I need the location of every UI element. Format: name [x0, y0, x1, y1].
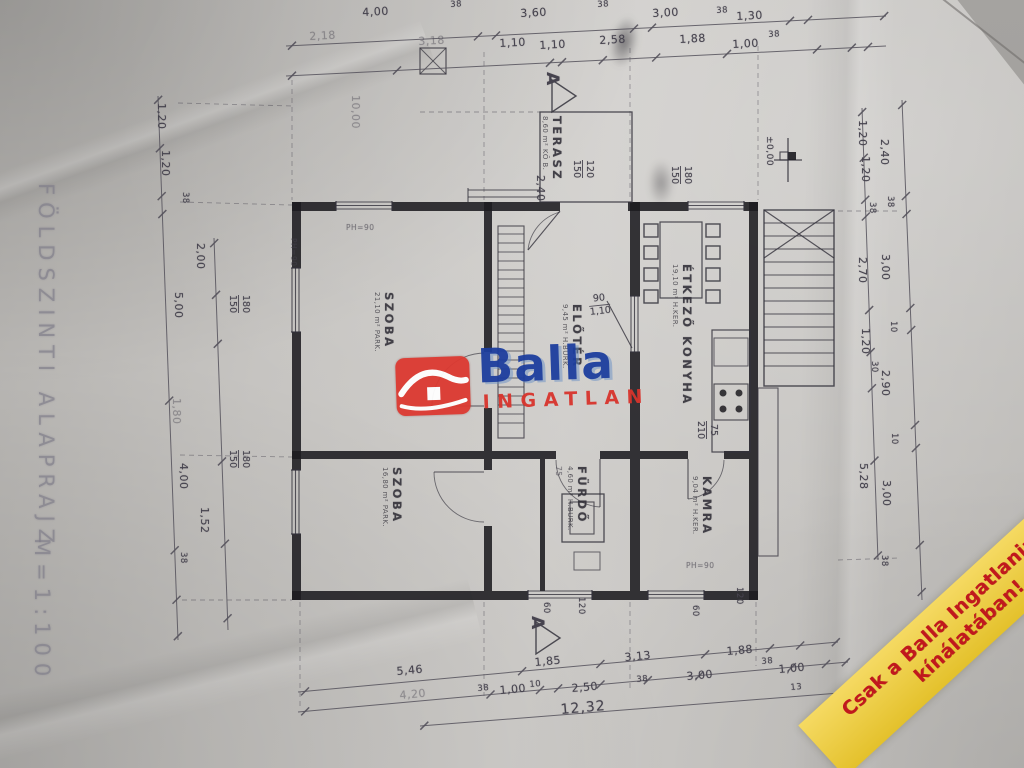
room-name: FÜRDŐ	[575, 466, 589, 531]
logo-wordmark: Balla	[476, 335, 614, 395]
stairs	[758, 210, 834, 556]
dimension-label: 1,52	[198, 507, 211, 534]
dimension-label: 38	[761, 656, 774, 667]
dimension-label: 38	[867, 202, 877, 214]
dimension-label: 3,00	[880, 480, 893, 507]
room-label: TERASZ 8,60 m² KŐ B.	[541, 116, 564, 181]
dimension-label: 3,18	[418, 34, 445, 48]
room-label: ÉTKEZŐ KONYHA 19,10 m² H.KER.	[671, 264, 694, 406]
balla-ingatlan-logo: Balla INGATLAN	[395, 342, 648, 427]
photographed-floor-plan: FÖLDSZINTI ALAPRAJZ M=1:100 4,00383,6038…	[0, 0, 1024, 768]
dimension-label: 3,00	[686, 668, 714, 683]
opening-width: 120	[584, 160, 594, 178]
window-size-fraction: 180 150	[227, 295, 250, 313]
room-area: 16,80 m² PARK.	[381, 467, 389, 527]
dimension-label: 60	[541, 602, 551, 614]
opening-height: 210	[695, 421, 705, 439]
dimension-label: 2,70	[856, 257, 869, 284]
room-area: 9,04 m² H.KER.	[691, 476, 699, 536]
plan-marker: 75	[554, 466, 563, 477]
dimension-label: 1,20	[856, 120, 869, 147]
room-label: SZOBA 21,10 m² PARK.	[373, 292, 396, 352]
dimension-label: 2,18	[309, 29, 336, 43]
dimension-label: 38	[636, 674, 649, 685]
plan-title-vertical: FÖLDSZINTI ALAPRAJZ	[34, 183, 58, 550]
room-label: SZOBA 16,80 m² PARK.	[381, 467, 404, 527]
dimension-label: 4,00	[362, 5, 389, 19]
opening-height: 150	[571, 160, 581, 178]
opening-height: 150	[227, 295, 237, 313]
fraction-bar	[238, 295, 239, 313]
dimension-label: 13	[790, 682, 803, 693]
dimension-label: 38	[879, 555, 889, 567]
room-label: KAMRA 9,04 m² H.KER.	[691, 476, 714, 536]
dimension-label: 1,88	[726, 643, 754, 658]
opening-width: 180	[240, 295, 250, 313]
fraction-bar	[238, 450, 239, 468]
dimension-label: 4,20	[399, 687, 427, 702]
plan-marker: A	[542, 72, 562, 85]
dimension-label: 1,10	[539, 38, 566, 52]
dimension-label: 38	[885, 196, 895, 208]
opening-width: 180	[240, 450, 250, 468]
terrace	[420, 48, 632, 202]
room-area: 8,60 m² KŐ B.	[541, 116, 549, 181]
logo-house-icon	[395, 356, 471, 417]
dimension-label: 38	[477, 683, 490, 694]
dimension-label: 1,88	[679, 32, 706, 46]
plan-marker: PH=90	[346, 223, 375, 232]
dimension-label: 1,20	[859, 328, 872, 355]
logo-subtext: INGATLAN	[482, 386, 650, 414]
dimension-label: 1,00	[778, 661, 806, 676]
dimension-label: 38	[768, 29, 780, 40]
dimension-label: 38	[180, 192, 190, 204]
dimension-label: 3,00	[879, 254, 892, 281]
dimension-label: 1,00	[732, 37, 759, 51]
dimension-label: 38	[178, 552, 188, 564]
dimension-label: 10	[888, 321, 898, 333]
opening-width: 75	[708, 424, 718, 436]
opening-width: 90	[593, 293, 606, 304]
room-name: SZOBA	[382, 292, 396, 352]
room-area: 4,60 m² H.BURK.	[566, 466, 574, 531]
dimension-label: 1,30	[736, 9, 763, 23]
dimension-label: 2,00	[194, 243, 207, 270]
dimension-label: 10	[889, 433, 899, 445]
window-size-fraction: 120 150	[571, 160, 594, 178]
dimension-label: 3,60	[520, 6, 547, 20]
room-name: SZOBA	[390, 467, 404, 527]
dimension-label: 2,40	[878, 139, 891, 166]
plan-marker: PH=90	[686, 561, 715, 570]
fraction-bar	[582, 160, 583, 178]
plan-marker: ±0,00	[764, 136, 774, 166]
window-size-fraction: 90 1,10	[588, 293, 611, 318]
dimension-label: 2,90	[879, 370, 892, 397]
dimension-label: 1,20	[159, 150, 172, 177]
opening-height: 150	[227, 450, 237, 468]
plan-marker: PH=90	[289, 238, 298, 267]
dimension-label: 38	[716, 5, 728, 16]
dimension-label: 30	[869, 361, 879, 373]
dimension-label: 5,46	[396, 663, 424, 678]
dimension-label: 10,00	[349, 95, 362, 129]
dimension-label: 10	[529, 679, 542, 690]
room-name: ÉTKEZŐ KONYHA	[680, 264, 694, 406]
room-area: 21,10 m² PARK.	[373, 292, 381, 352]
dimension-label: 120	[576, 597, 586, 615]
dimension-label: 60	[690, 605, 700, 617]
fraction-bar	[706, 421, 707, 439]
dimension-label: 5,00	[172, 292, 185, 319]
dimension-label: 1,00	[499, 682, 527, 697]
window-size-fraction: 180 150	[669, 166, 692, 184]
dimension-label: 38	[450, 0, 462, 10]
fraction-bar	[680, 166, 681, 184]
room-label: FÜRDŐ 4,60 m² H.BURK.	[566, 466, 589, 531]
room-area: 19,10 m² H.KER.	[671, 264, 679, 406]
plan-scale-vertical: M=1:100	[30, 538, 54, 683]
room-name: TERASZ	[550, 116, 564, 181]
window-size-fraction: 180 150	[227, 450, 250, 468]
dimension-label: 3,00	[652, 6, 679, 20]
opening-width: 180	[682, 166, 692, 184]
dimension-label: 2,58	[599, 33, 626, 47]
dimension-label: 1,85	[534, 654, 562, 669]
room-name: KAMRA	[700, 476, 714, 536]
dimension-label: 38	[597, 0, 609, 10]
dimension-label: 1,20	[155, 103, 168, 130]
dimension-label: 1,20	[859, 156, 872, 183]
dimension-label: 1,10	[499, 36, 526, 50]
window-size-fraction: 75 210	[695, 421, 718, 439]
dimension-label: 5,28	[857, 463, 870, 490]
dimension-label: 3,13	[624, 649, 652, 664]
dimension-label: 1,80	[170, 398, 183, 425]
dimension-label: 120	[734, 587, 744, 605]
opening-height: 150	[669, 166, 679, 184]
dimension-label: 2,50	[571, 680, 599, 695]
dimension-label: 4,00	[177, 463, 190, 490]
plan-marker: A	[527, 616, 547, 629]
